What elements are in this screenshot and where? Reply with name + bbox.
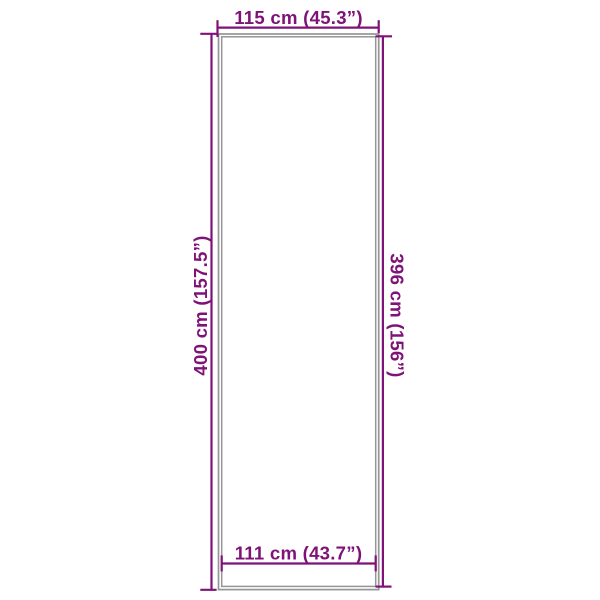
svg-text:396 cm (156”): 396 cm (156”) <box>387 253 408 377</box>
svg-text:115 cm (45.3”): 115 cm (45.3”) <box>234 7 363 28</box>
svg-text:400 cm (157.5”): 400 cm (157.5”) <box>190 235 211 375</box>
svg-text:111 cm (43.7”): 111 cm (43.7”) <box>235 543 363 564</box>
